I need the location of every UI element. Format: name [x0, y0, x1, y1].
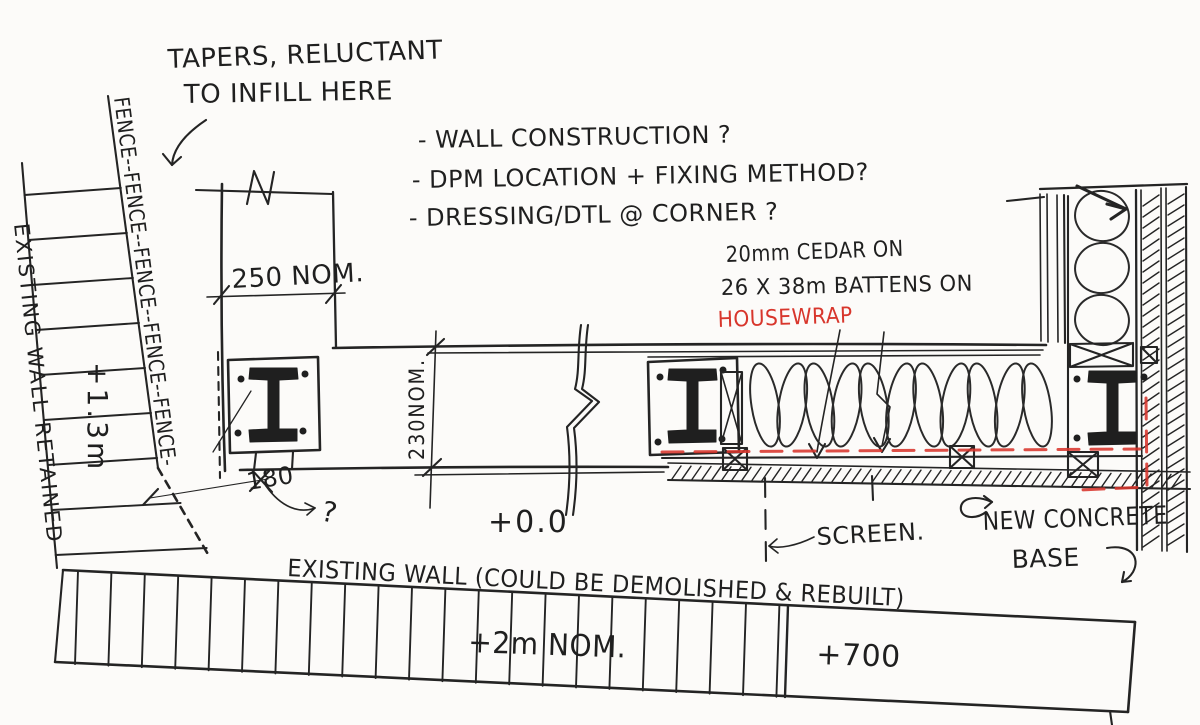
right-return-wall	[1007, 184, 1187, 552]
dim-230: 230NOM.	[405, 331, 444, 508]
question-dpm-location: - DPM LOCATION + FIXING METHOD?	[412, 158, 869, 194]
question-list: - WALL CONSTRUCTION ? - DPM LOCATION + F…	[409, 121, 869, 232]
tapers-arrow-icon	[163, 120, 206, 165]
dim-250-label: 250 NOM.	[231, 258, 365, 295]
fence-label: FENCE--FENCE--FENCE--FENCE--FENCE-	[109, 96, 181, 468]
dim-230-label: 230NOM.	[405, 358, 429, 460]
existing-wall-left-label: EXISTING WALL RETAINED	[9, 222, 67, 545]
cladding-note-housewrap: HOUSEWRAP	[717, 303, 853, 333]
new-concrete-line2: BASE	[1011, 543, 1080, 574]
level-zero-label: +0.0	[488, 505, 569, 540]
construction-sketch: FENCE--FENCE--FENCE--FENCE--FENCE- EXIST…	[0, 0, 1200, 725]
cladding-note-line2: 26 X 38m BATTENS ON	[721, 272, 973, 301]
sketch-canvas: FENCE--FENCE--FENCE--FENCE--FENCE- EXIST…	[0, 0, 1200, 725]
tapers-note-line1: TAPERS, RELUCTANT	[166, 35, 443, 75]
concrete-arrow-right-icon	[1107, 547, 1136, 582]
steel-column-left	[213, 352, 320, 478]
insulation-horizontal	[745, 361, 1057, 448]
cladding-note-line1: 20mm CEDAR ON	[725, 237, 904, 268]
new-concrete-line1: NEW CONCRETE	[982, 501, 1168, 536]
tapers-note-line2: TO INFILL HERE	[183, 76, 394, 110]
question-dressing-corner: - DRESSING/DTL @ CORNER ?	[409, 198, 779, 232]
query-mark: ?	[319, 495, 341, 530]
tapers-note: TAPERS, RELUCTANT TO INFILL HERE	[163, 35, 443, 165]
screen-line: SCREEN.	[765, 476, 925, 562]
screen-label: SCREEN.	[816, 517, 925, 551]
cladding-hatch-1	[1143, 195, 1159, 547]
screen-arrow-icon	[769, 537, 814, 553]
level-700-label: +700	[816, 637, 902, 675]
question-wall-construction: - WALL CONSTRUCTION ?	[418, 121, 732, 154]
fence-height-dim: +1.3m	[81, 362, 114, 472]
dim-250: 250 NOM.	[207, 258, 365, 304]
dim-2m-label: +2m NOM.	[468, 625, 627, 665]
cladding-hatch-2	[1168, 194, 1184, 545]
section-break-icon	[566, 325, 599, 515]
existing-wall-bottom-label: EXISTING WALL (COULD BE DEMOLISHED & REB…	[287, 554, 906, 612]
